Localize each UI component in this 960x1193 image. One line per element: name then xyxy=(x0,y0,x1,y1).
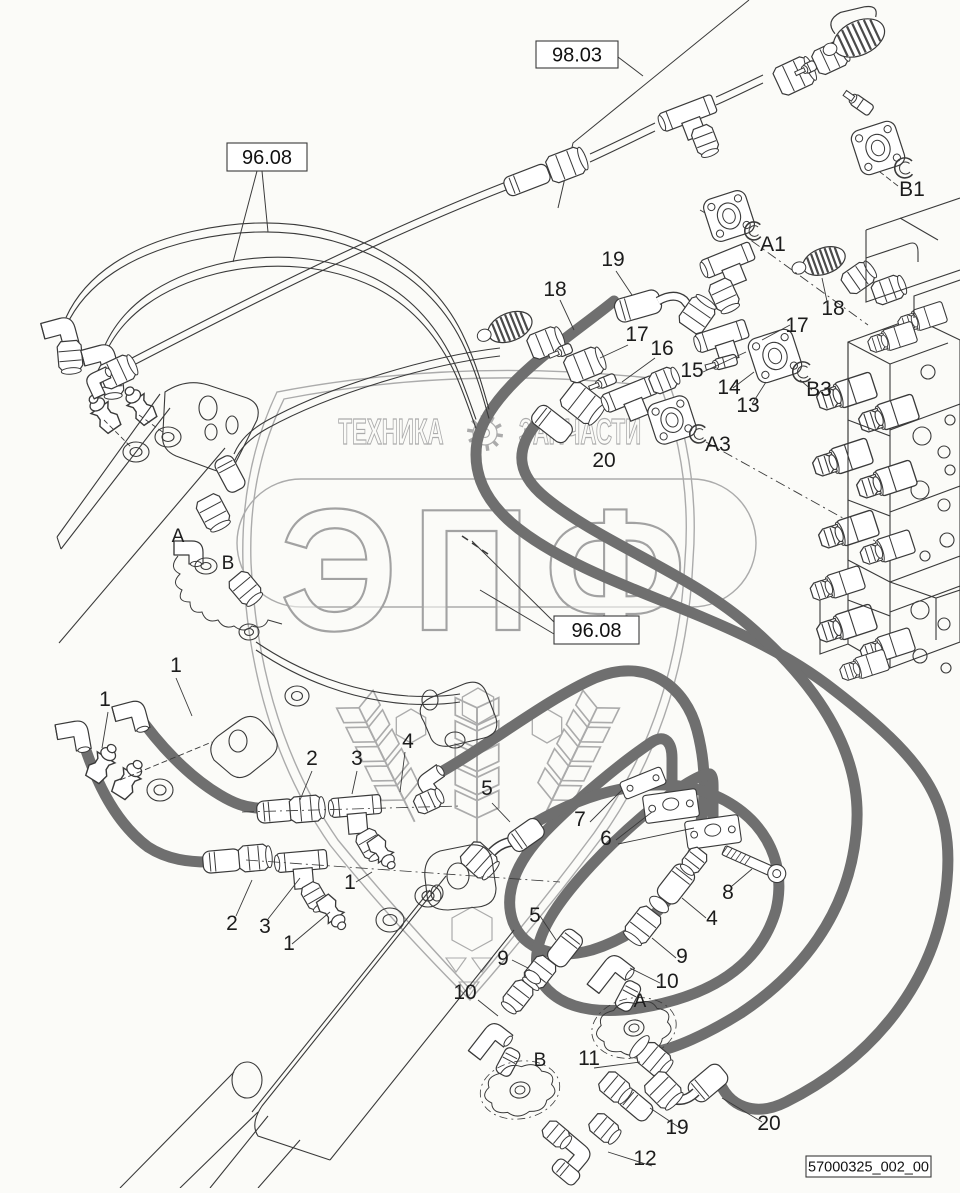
svg-text:5: 5 xyxy=(529,904,541,927)
svg-text:9: 9 xyxy=(497,947,509,970)
svg-text:1: 1 xyxy=(170,654,182,677)
svg-text:10: 10 xyxy=(453,981,476,1004)
svg-text:20: 20 xyxy=(757,1112,780,1135)
svg-text:11: 11 xyxy=(578,1047,600,1070)
svg-text:19: 19 xyxy=(665,1116,688,1139)
svg-text:5: 5 xyxy=(481,777,493,800)
svg-text:1: 1 xyxy=(344,871,356,894)
svg-text:17: 17 xyxy=(625,323,648,346)
svg-text:A: A xyxy=(172,526,185,547)
svg-text:B: B xyxy=(222,553,235,574)
svg-text:1: 1 xyxy=(99,688,111,711)
svg-text:3: 3 xyxy=(351,747,363,770)
svg-text:3: 3 xyxy=(259,915,271,938)
svg-text:98.03: 98.03 xyxy=(552,45,602,67)
svg-text:A3: A3 xyxy=(705,433,731,456)
svg-text:20: 20 xyxy=(592,449,615,472)
svg-text:10: 10 xyxy=(655,970,678,993)
svg-text:A: A xyxy=(634,991,647,1012)
svg-text:8: 8 xyxy=(722,881,734,904)
svg-text:18: 18 xyxy=(543,278,566,301)
svg-text:16: 16 xyxy=(650,337,673,360)
svg-text:9: 9 xyxy=(676,945,688,968)
svg-text:4: 4 xyxy=(402,730,414,753)
svg-text:96.08: 96.08 xyxy=(242,147,292,169)
svg-text:B: B xyxy=(534,1050,547,1071)
svg-text:12: 12 xyxy=(633,1147,656,1170)
svg-text:B3: B3 xyxy=(806,378,832,401)
svg-text:19: 19 xyxy=(601,248,624,271)
svg-text:A1: A1 xyxy=(760,233,786,256)
svg-text:15: 15 xyxy=(680,359,703,382)
svg-text:57000325_002_00: 57000325_002_00 xyxy=(808,1160,929,1176)
svg-text:96.08: 96.08 xyxy=(571,620,621,642)
svg-text:ТЕХНИКА: ТЕХНИКА xyxy=(338,413,443,453)
svg-text:4: 4 xyxy=(706,907,718,930)
svg-text:18: 18 xyxy=(821,297,844,320)
svg-text:B1: B1 xyxy=(899,178,925,201)
svg-text:7: 7 xyxy=(574,808,586,831)
svg-text:2: 2 xyxy=(306,747,318,770)
svg-text:6: 6 xyxy=(600,827,612,850)
